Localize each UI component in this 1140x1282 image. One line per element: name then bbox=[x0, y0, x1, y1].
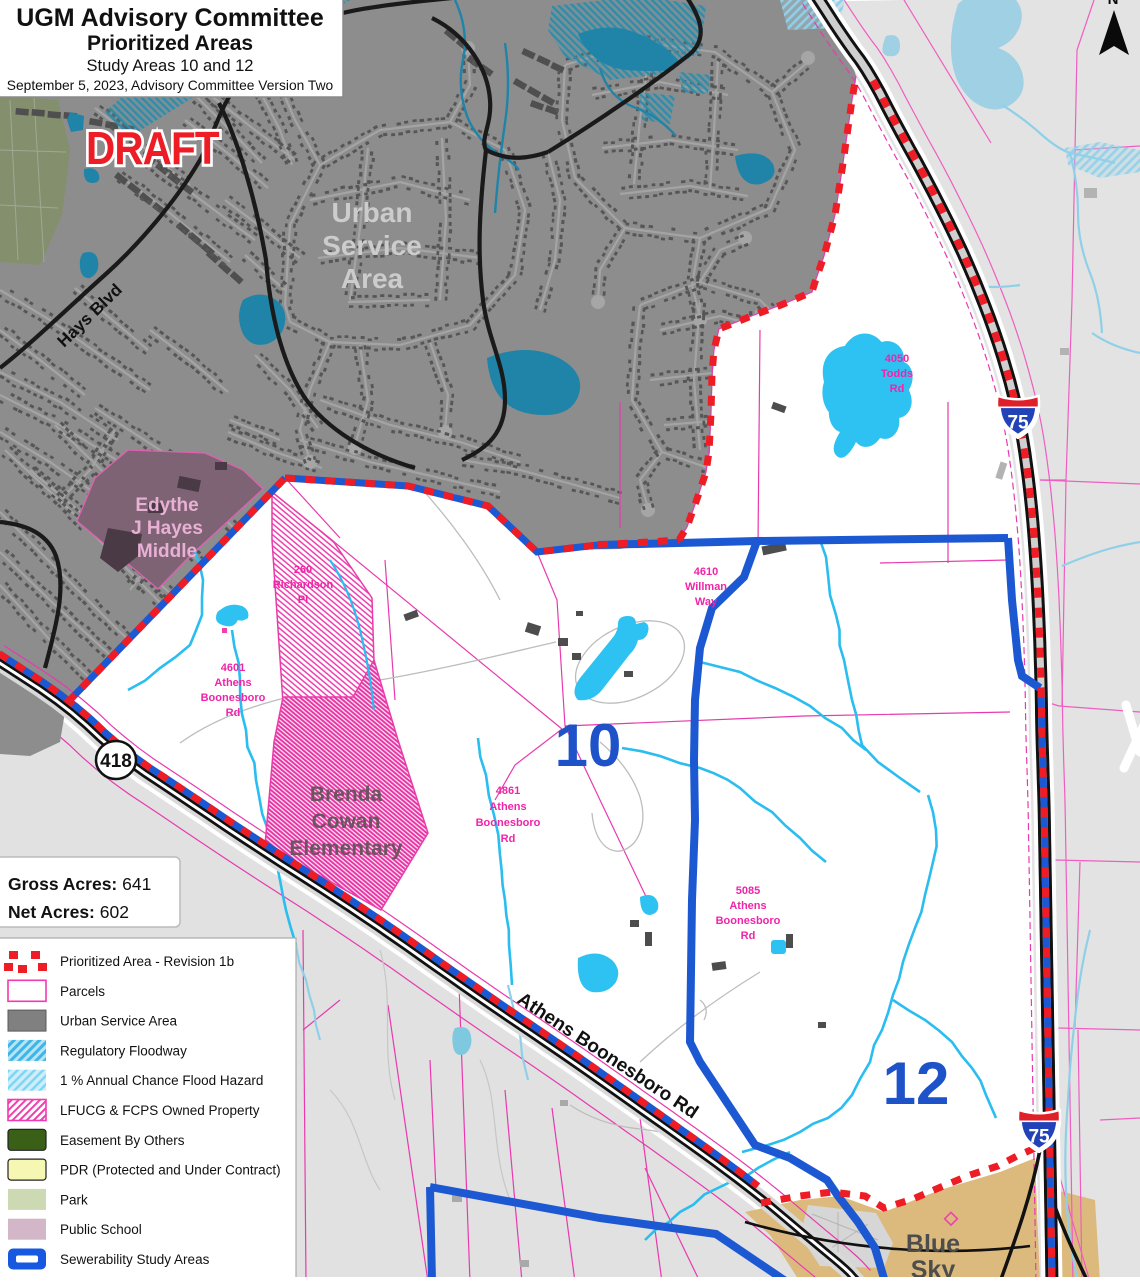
svg-text:September 5, 2023, Advisory Co: September 5, 2023, Advisory Committee Ve… bbox=[7, 78, 334, 93]
svg-text:75: 75 bbox=[1007, 413, 1029, 434]
svg-text:1 % Annual Chance Flood Hazard: 1 % Annual Chance Flood Hazard bbox=[60, 1073, 263, 1088]
svg-text:UGM Advisory Committee: UGM Advisory Committee bbox=[16, 4, 324, 32]
svg-text:Public School: Public School bbox=[60, 1222, 142, 1237]
svg-text:Urban Service Area: Urban Service Area bbox=[60, 1014, 178, 1029]
svg-text:PDR (Protected and Under Contr: PDR (Protected and Under Contract) bbox=[60, 1163, 281, 1178]
svg-text:BlueSky: BlueSky bbox=[906, 1230, 960, 1277]
svg-text:Net Acres: 602: Net Acres: 602 bbox=[8, 902, 129, 922]
svg-text:Study Areas 10 and 12: Study Areas 10 and 12 bbox=[87, 57, 254, 75]
svg-text:Parcels: Parcels bbox=[60, 984, 105, 999]
svg-text:Prioritized Area - Revision 1b: Prioritized Area - Revision 1b bbox=[60, 954, 234, 969]
svg-text:EdytheJ HayesMiddle: EdytheJ HayesMiddle bbox=[131, 495, 203, 562]
svg-text:Regulatory Floodway: Regulatory Floodway bbox=[60, 1043, 187, 1058]
svg-text:75: 75 bbox=[1028, 1127, 1050, 1148]
svg-text:DRAFT: DRAFT bbox=[86, 124, 219, 175]
svg-text:Easement By Others: Easement By Others bbox=[60, 1133, 185, 1148]
svg-text:Sewerability Study Areas: Sewerability Study Areas bbox=[60, 1252, 210, 1267]
svg-text:Prioritized Areas: Prioritized Areas bbox=[87, 32, 253, 55]
svg-text:12: 12 bbox=[883, 1050, 950, 1117]
svg-text:LFUCG & FCPS Owned Property: LFUCG & FCPS Owned Property bbox=[60, 1103, 260, 1118]
svg-text:418: 418 bbox=[100, 751, 132, 772]
svg-text:Gross Acres: 641: Gross Acres: 641 bbox=[8, 874, 151, 894]
svg-text:10: 10 bbox=[555, 712, 622, 779]
svg-text:N: N bbox=[1108, 0, 1119, 8]
svg-text:Park: Park bbox=[60, 1192, 88, 1207]
